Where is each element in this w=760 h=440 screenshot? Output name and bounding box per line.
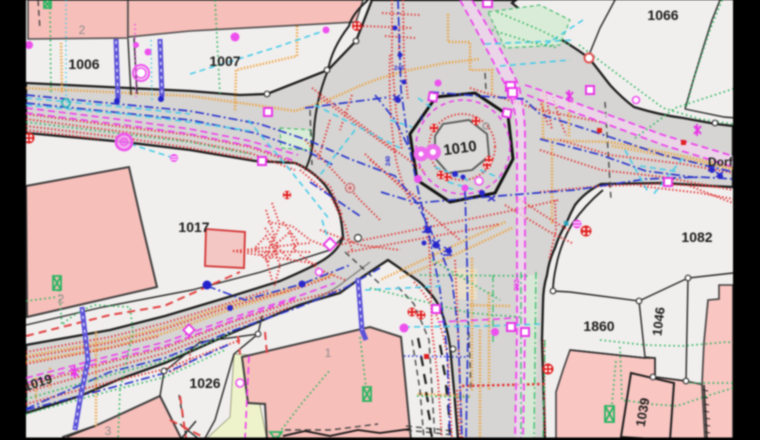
svg-text:1007: 1007 (209, 53, 240, 69)
svg-text:1017: 1017 (178, 219, 209, 235)
svg-text:2: 2 (58, 292, 65, 306)
svg-text:240: 240 (394, 66, 405, 72)
svg-text:1006: 1006 (68, 56, 99, 72)
svg-text:3: 3 (105, 424, 112, 438)
svg-text:302: 302 (514, 279, 521, 291)
svg-text:1: 1 (325, 346, 332, 360)
svg-text:Dorf: Dorf (708, 155, 734, 169)
svg-text:1026: 1026 (189, 375, 220, 391)
svg-text:2: 2 (79, 23, 86, 37)
svg-text:1860: 1860 (583, 318, 614, 334)
svg-text:240: 240 (386, 155, 392, 166)
svg-text:1082: 1082 (681, 229, 712, 245)
svg-text:1066: 1066 (647, 7, 678, 23)
